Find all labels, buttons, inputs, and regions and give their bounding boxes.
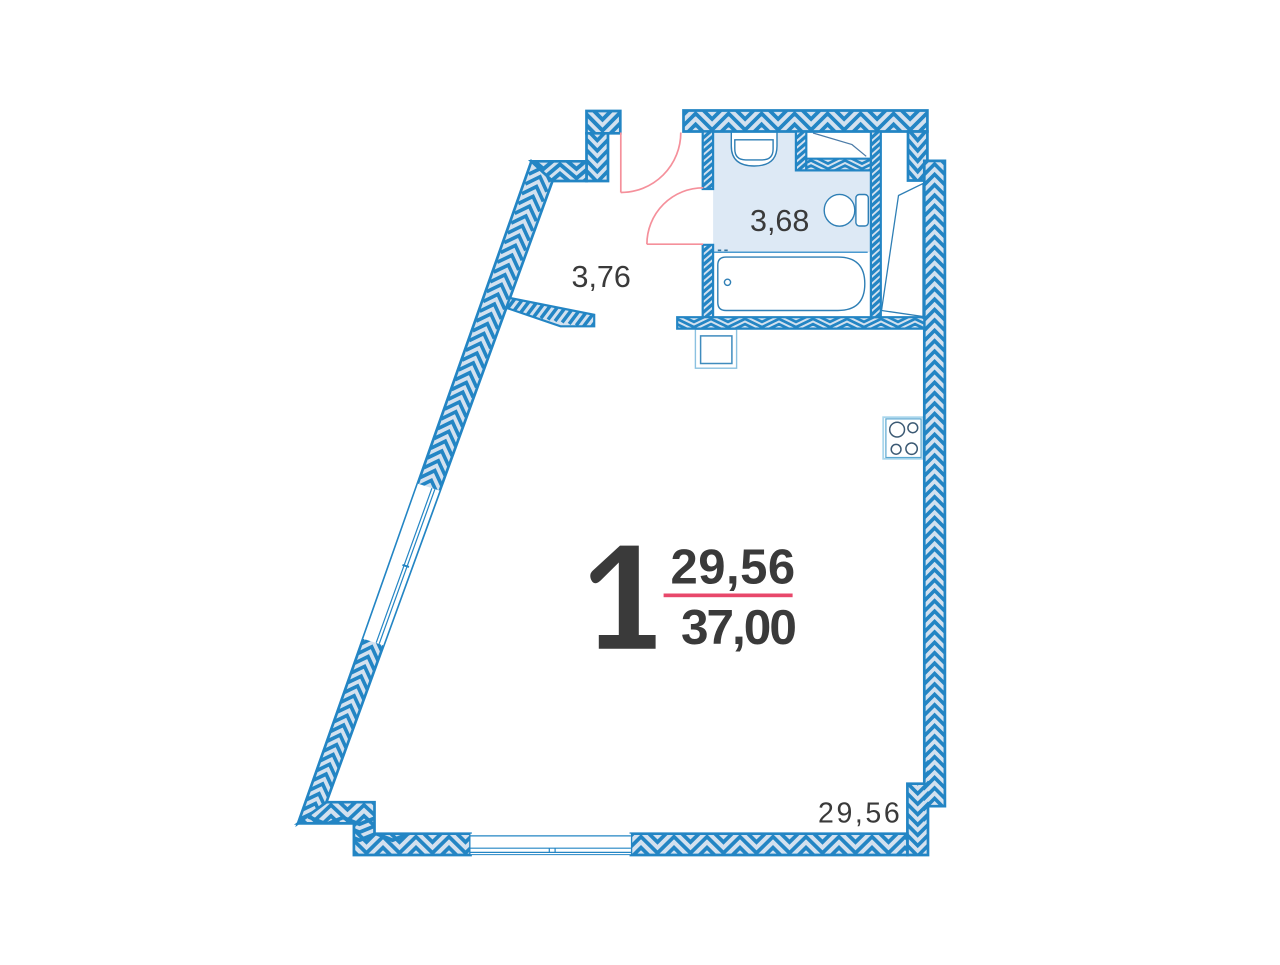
- svg-text:29,56: 29,56: [818, 798, 902, 830]
- svg-text:37,00: 37,00: [681, 600, 795, 655]
- svg-text:3,76: 3,76: [572, 260, 631, 294]
- svg-text:29,56: 29,56: [671, 541, 796, 595]
- svg-text:3,68: 3,68: [750, 204, 809, 238]
